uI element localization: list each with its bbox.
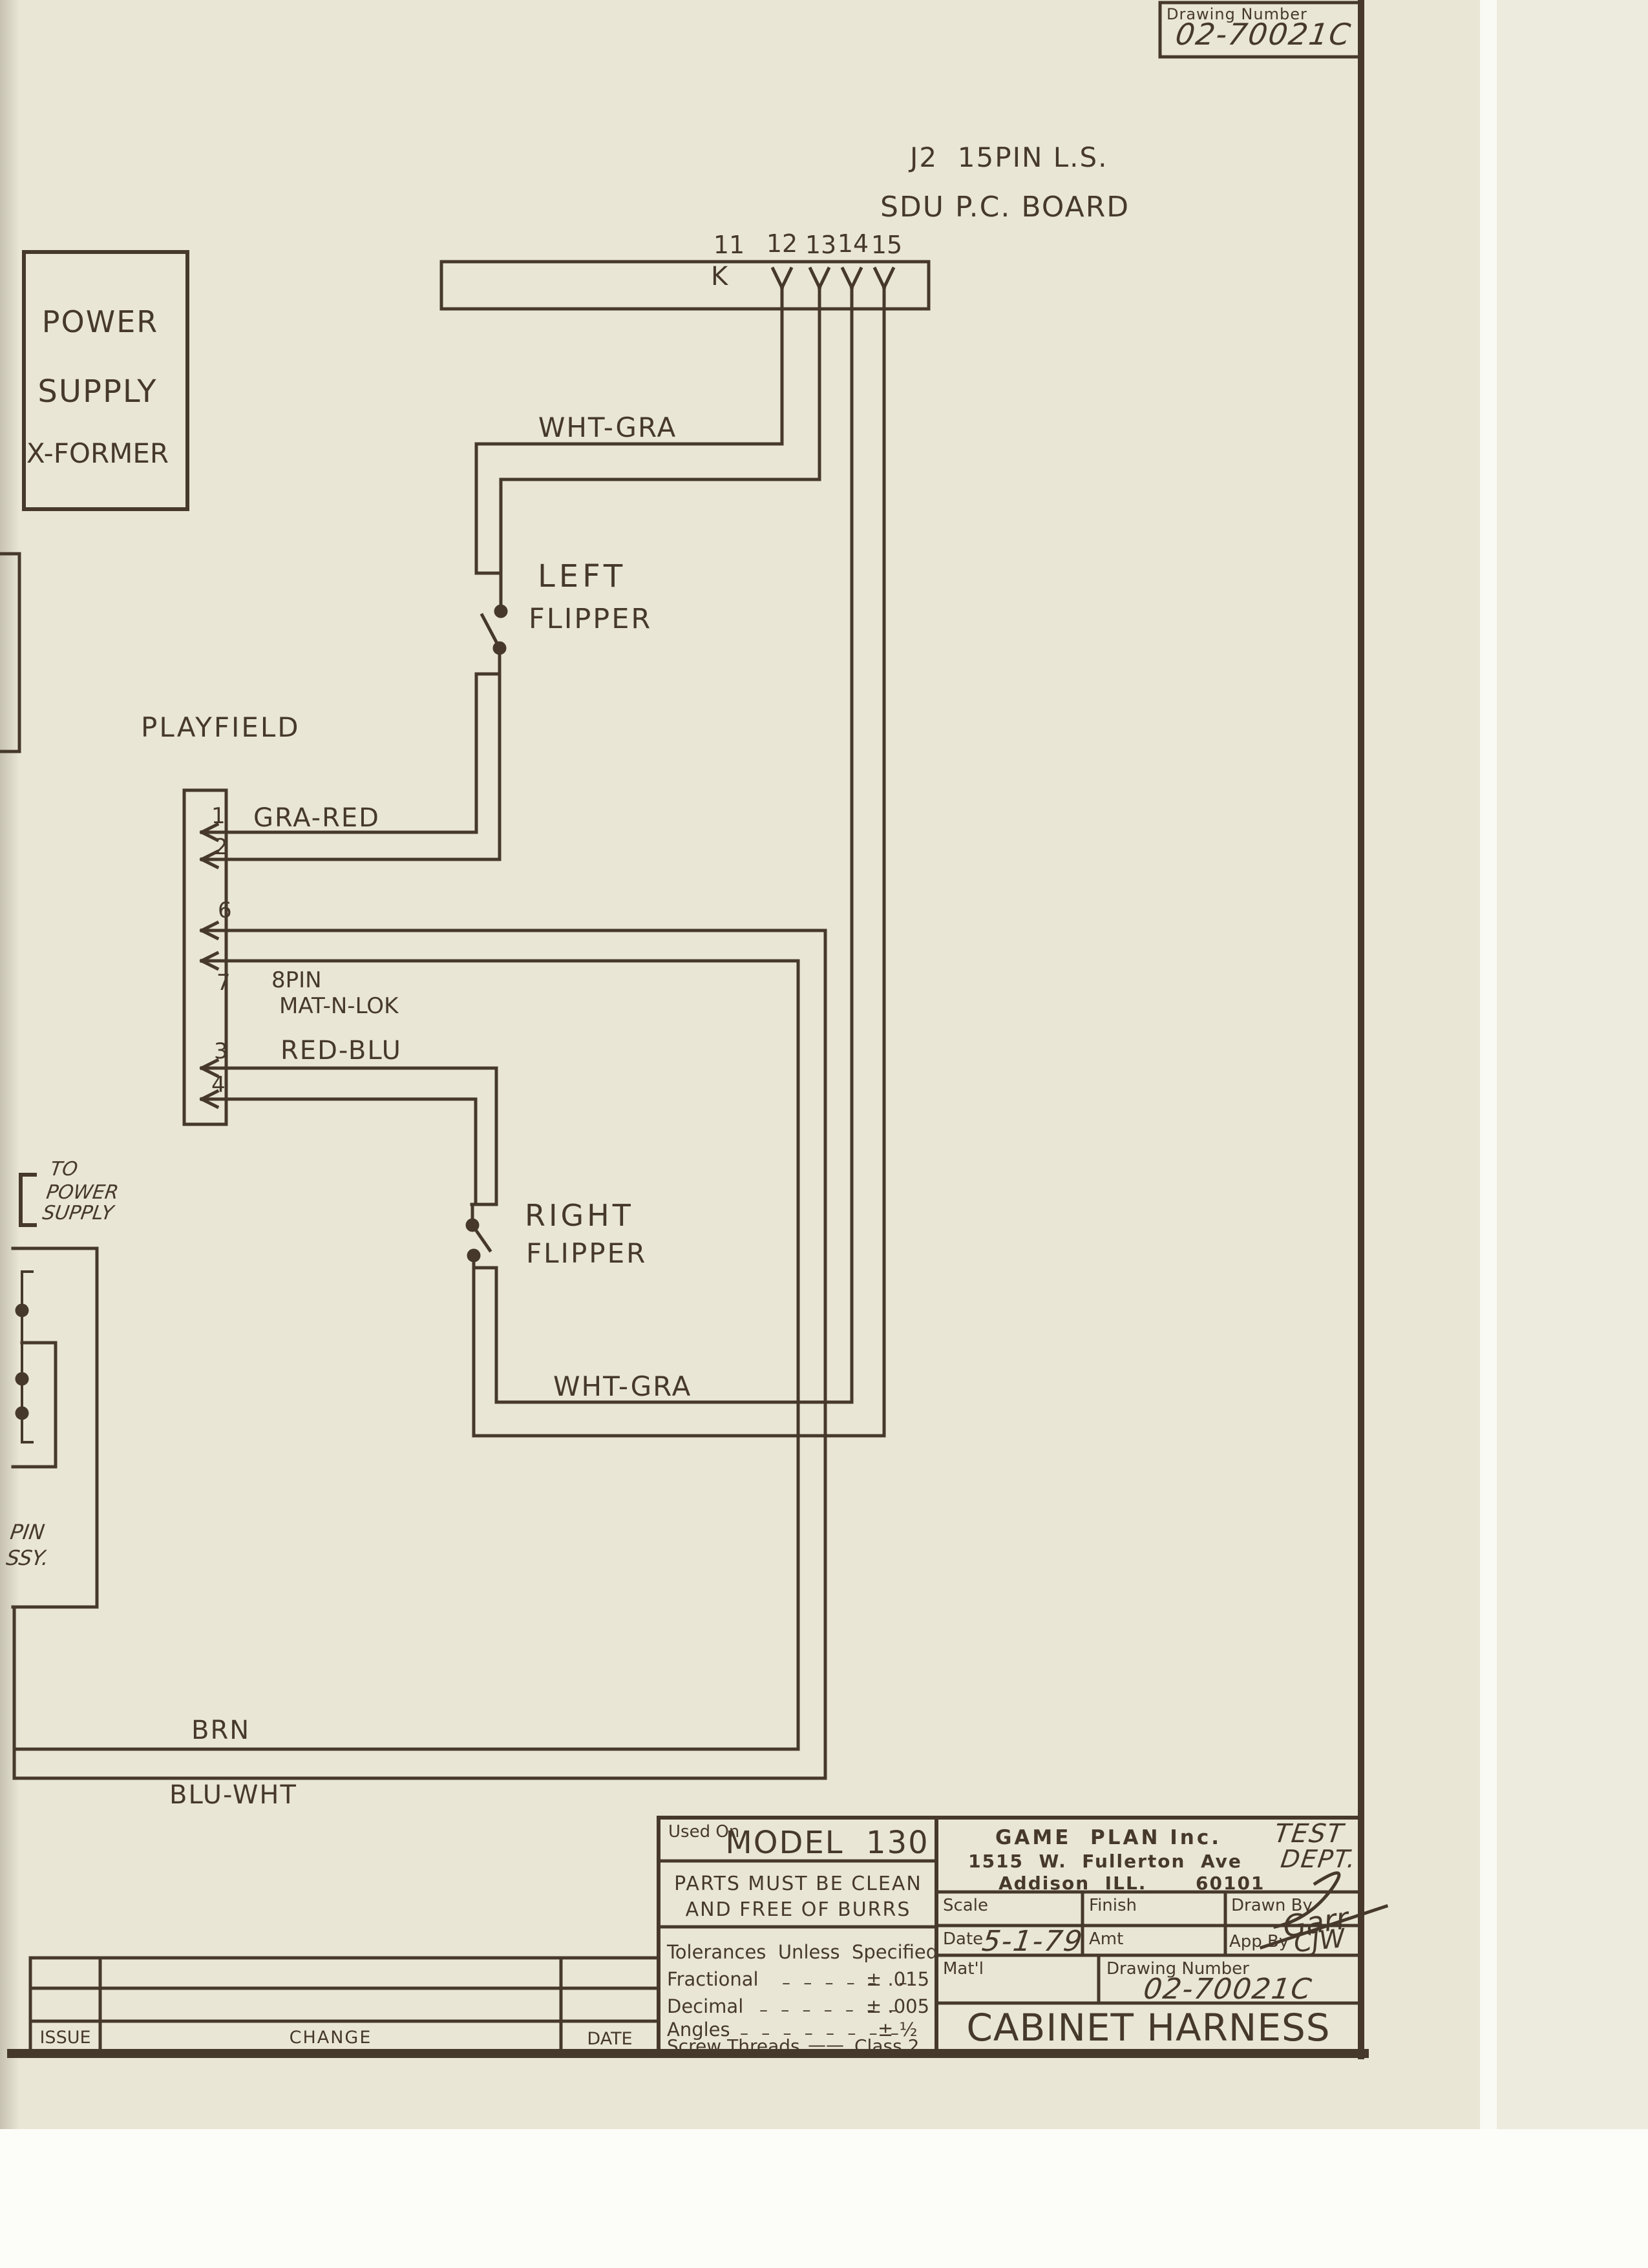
issue-column-label: ISSUE (30, 2029, 100, 2047)
to-power-supply-label-1: TO (49, 1159, 79, 1179)
date-value: 5-1-79 (980, 1927, 1085, 1957)
right-flipper-label-2: FLIPPER (526, 1239, 647, 1268)
left-flipper-label-1: LEFT (538, 561, 626, 593)
wht-gra-top-label: WHT-GRA (527, 414, 688, 442)
change-column-label: CHANGE (100, 2029, 561, 2047)
sdu-pin-14: 14 (835, 231, 871, 257)
to-power-supply-label-3: SUPPLY (41, 1203, 115, 1223)
schematic-linework (0, 0, 1648, 2268)
left-flipper-label-2: FLIPPER (529, 605, 652, 634)
wire-blu-wht (14, 930, 825, 1778)
company-dept-1: TEST (1273, 1821, 1346, 1848)
playfield-pin-1: 1 (211, 805, 226, 828)
sdu-header-line1: J2 15PIN L.S. (910, 143, 1108, 172)
playfield-pin-7: 7 (217, 972, 231, 994)
right-flipper-switch (467, 1220, 490, 1261)
to-power-supply-label-2: POWER (45, 1182, 120, 1202)
screw-threads-dashes: —— (808, 2035, 844, 2054)
pin-assy-label-2: SSY. (5, 1548, 50, 1569)
sdu-pin-11: 11 (711, 233, 747, 258)
company-city: Addison ILL. (998, 1874, 1146, 1893)
date-column-label: DATE (561, 2030, 659, 2048)
app-by-label: App By (1229, 1933, 1289, 1951)
playfield-pin-6: 6 (218, 899, 232, 922)
amt-label: Amt (1089, 1931, 1123, 1948)
playfield-pin-arrows (202, 824, 217, 1107)
sdu-pin-13: 13 (803, 233, 839, 258)
pin-assy-label-1: PIN (9, 1522, 46, 1543)
playfield-pin-2: 2 (214, 836, 228, 859)
playfield-label: PLAYFIELD (141, 713, 301, 742)
tol-decimal-value: ± .005 (866, 1997, 929, 2016)
sdu-k-label: K (711, 264, 728, 291)
scale-label: Scale (943, 1897, 988, 1915)
drawing-number-value: 02-70021C (1103, 1975, 1353, 2004)
sdu-header-line2: SDU P.C. BOARD (880, 193, 1130, 222)
power-box-line2: SUPPLY (14, 376, 181, 408)
date-label: Date (943, 1931, 983, 1948)
red-blu-label: RED-BLU (280, 1038, 402, 1065)
blu-wht-label: BLU-WHT (169, 1782, 297, 1809)
gra-red-label: GRA-RED (253, 805, 380, 832)
to-power-supply-connector (21, 1175, 35, 1225)
right-flipper-label-1: RIGHT (525, 1201, 634, 1232)
drawing-number-box-value: 02-70021C (1168, 19, 1360, 50)
app-by-signature: CJW (1293, 1926, 1346, 1958)
sdu-connector (441, 262, 929, 309)
sdu-pin-12: 12 (764, 231, 800, 257)
company-dept-2: DEPT. (1279, 1847, 1358, 1873)
company-name: GAME PLAN Inc. (969, 1827, 1247, 1848)
scanned-schematic-sheet: Drawing Number 02-70021C J2 15PIN L.S. S… (0, 0, 1648, 2268)
left-flipper-switch (482, 606, 506, 653)
parts-note-line2: AND FREE OF BURRS (662, 1900, 934, 1920)
wire-brn (14, 961, 798, 1749)
model-value: MODEL 130 (724, 1827, 931, 1860)
wire-wht-gra-left-flipper (476, 309, 819, 610)
8pin-label-2: MAT-N-LOK (279, 995, 398, 1018)
sheet-title: CABINET HARNESS (938, 2008, 1358, 2047)
wire-red-blu-to-right-flipper (202, 1068, 496, 1224)
tol-decimal-name: Decimal (667, 1997, 743, 2016)
screw-threads-value: Class 2 (854, 2037, 919, 2055)
brn-label: BRN (191, 1717, 250, 1745)
sdu-pin-15: 15 (869, 233, 905, 258)
parts-note-line1: PARTS MUST BE CLEAN (662, 1874, 934, 1894)
finish-label: Finish (1089, 1897, 1137, 1915)
tolerances-title: Tolerances Unless Specified (667, 1942, 938, 1962)
power-box-line3: X-FORMER (14, 439, 181, 468)
power-box-line1: POWER (19, 307, 181, 338)
tol-fractional-value: ± .015 (866, 1969, 929, 1989)
matl-label: Mat'l (943, 1960, 984, 1978)
left-edge-fragment-box (0, 554, 19, 751)
company-address: 1515 W. Fullerton Ave (963, 1852, 1247, 1871)
playfield-pin-3: 3 (214, 1040, 228, 1063)
screw-threads-name: Screw Threads (667, 2037, 800, 2055)
company-zip: 60101 (1196, 1874, 1265, 1893)
8pin-label-1: 8PIN (271, 969, 322, 992)
playfield-pin-4: 4 (211, 1074, 226, 1097)
wht-gra-bottom-label: WHT-GRA (553, 1372, 692, 1401)
tol-fractional-name: Fractional (667, 1969, 759, 1989)
